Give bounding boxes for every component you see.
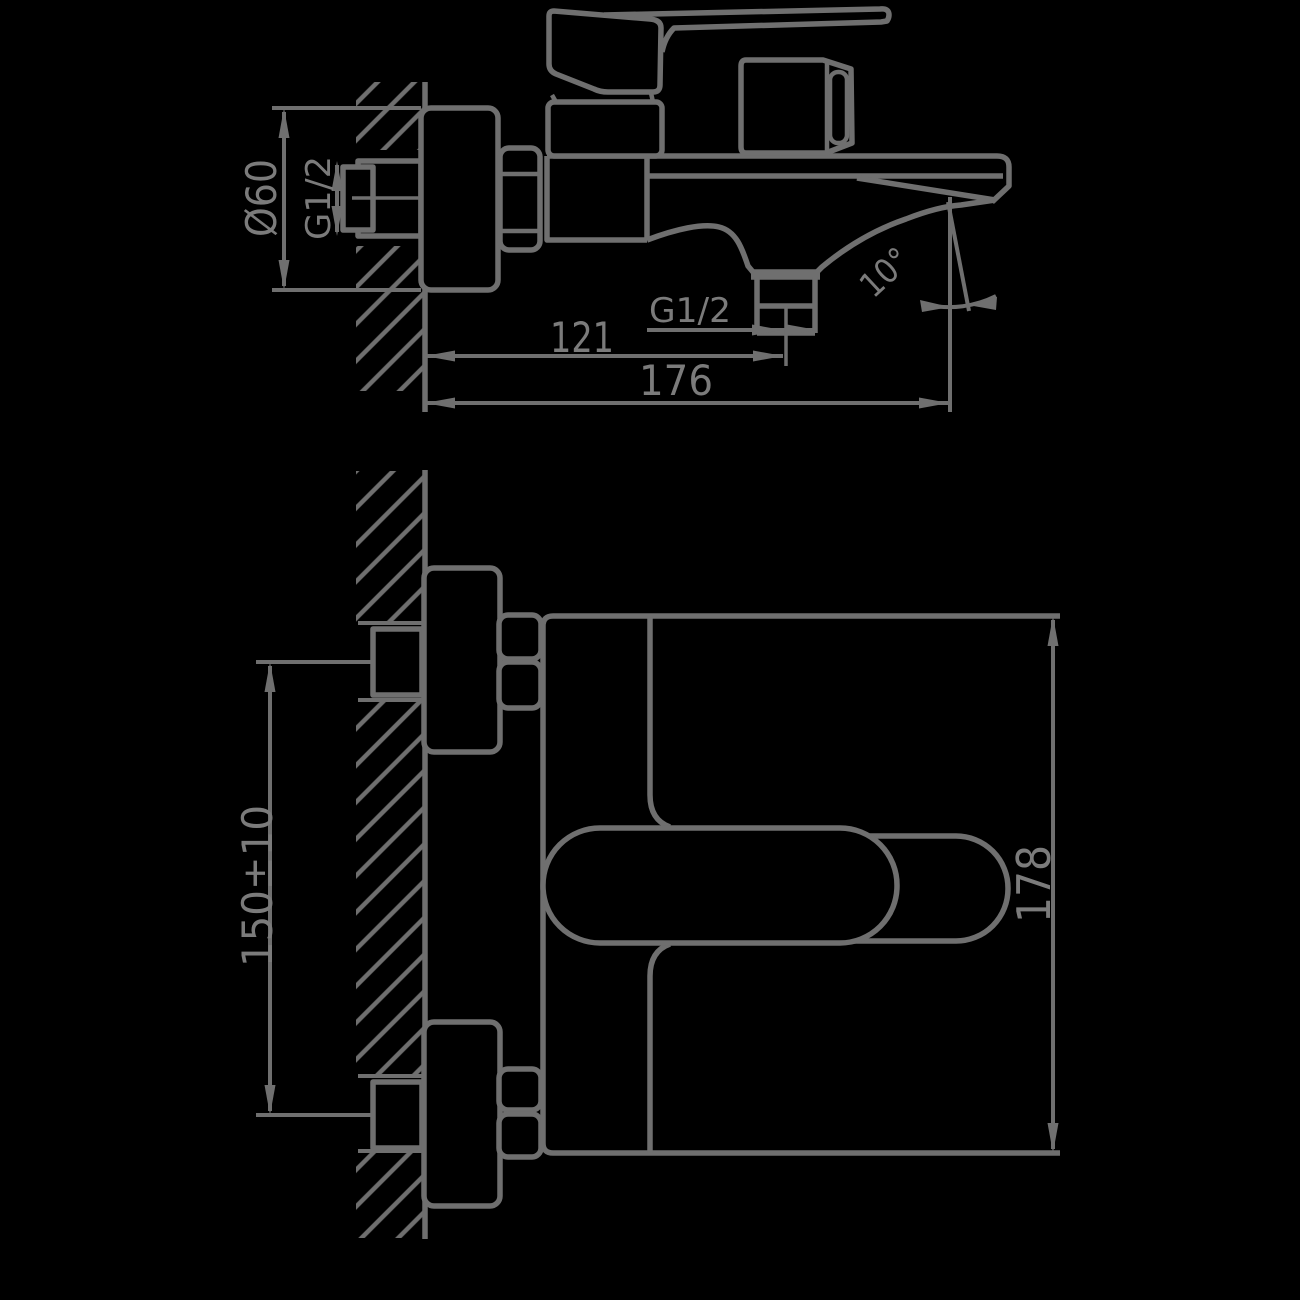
arrow-dia60-down: [279, 260, 290, 290]
front-view: [256, 470, 1060, 1239]
label-dim-178: 178: [1007, 845, 1061, 923]
cartridge-cap: [548, 102, 662, 156]
arrow-121-left: [425, 351, 455, 362]
label-dim-121: 121: [550, 313, 614, 362]
union-nut-top: [373, 629, 422, 695]
arrow-150-down: [265, 1085, 276, 1115]
valve-body-block: [547, 156, 647, 240]
eccentric-bottom: [424, 1022, 500, 1206]
label-dim-176: 176: [639, 356, 713, 405]
arrow-178-up: [1048, 616, 1059, 646]
hex-nut-bottom-a: [499, 1069, 541, 1110]
eccentric-top: [424, 568, 500, 752]
arrow-178-down: [1048, 1123, 1059, 1153]
spout-front-edge: [857, 178, 995, 200]
arrow-angle-left: [920, 300, 950, 312]
arrow-dia60-up: [279, 108, 290, 138]
label-outlet-thread: G1/2: [649, 291, 731, 331]
arrow-176-left: [425, 398, 455, 409]
bath-mixer-dimension-drawing: Ø60 G1/2 121 176 G1/2 10° 150±10 178: [0, 0, 1300, 1300]
lever-pivot: [549, 11, 661, 92]
union-nut-bottom: [373, 1082, 422, 1148]
body-bar-top: [547, 156, 1009, 202]
handle-front-pill: [543, 828, 897, 943]
escutcheon-plate: [421, 108, 498, 290]
diverter-knob: [741, 60, 852, 153]
technical-drawing-page: Ø60 G1/2 121 176 G1/2 10° 150±10 178: [0, 0, 1300, 1300]
arrow-150-up: [265, 662, 276, 692]
label-inlet-centers: 150±10: [233, 805, 282, 967]
side-view: [272, 9, 1009, 412]
arrow-121-right: [753, 351, 783, 362]
body-underside-left: [647, 226, 753, 272]
hex-nut-top-a: [499, 615, 541, 659]
drawing-geometry: [256, 9, 1060, 1239]
arrow-176-right: [919, 398, 949, 409]
label-spout-angle: 10°: [852, 240, 919, 306]
hex-nut-side: [500, 148, 540, 250]
label-wall-thread: G1/2: [299, 156, 339, 240]
hex-nut-bottom-b: [499, 1114, 541, 1157]
label-escutcheon-diameter: Ø60: [237, 159, 286, 237]
hex-nut-top-b: [499, 662, 541, 708]
